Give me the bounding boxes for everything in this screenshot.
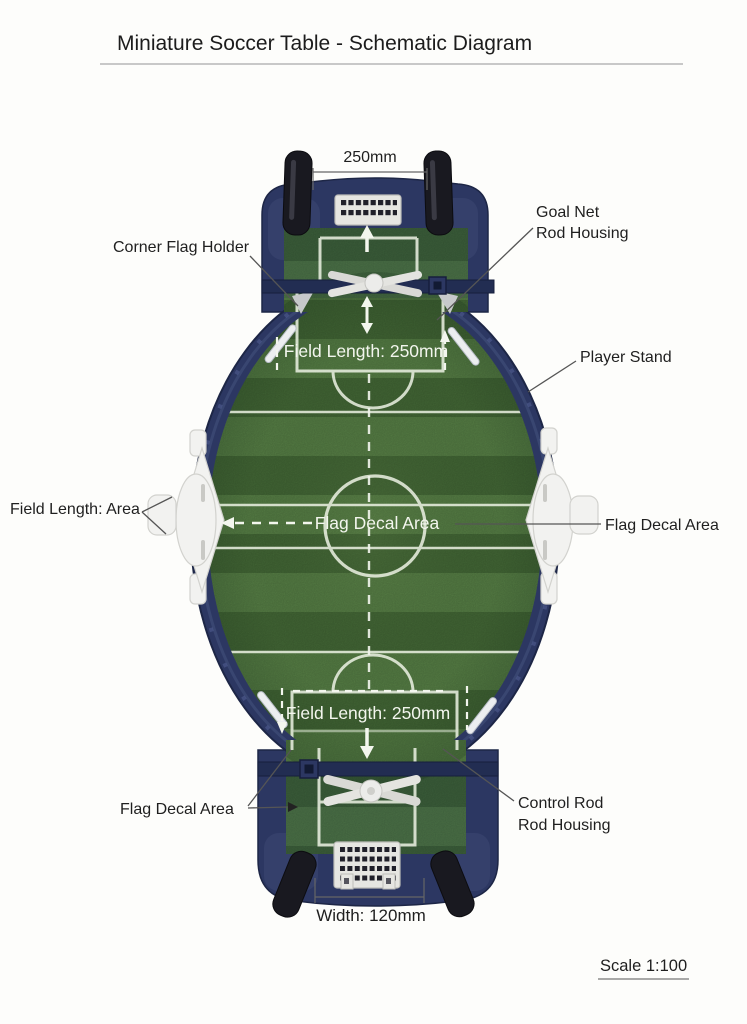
page-title: Miniature Soccer Table - Schematic Diagr…	[117, 32, 532, 55]
top-width-label: 250mm	[343, 149, 396, 166]
scale-note: Scale 1:100	[600, 957, 687, 975]
bottom-goal-clip-left-hole	[344, 878, 349, 884]
soccer-table-diagram: Field Length: 250mm Flag Decal Area Fiel…	[0, 0, 747, 1024]
label-goal-net-line2: Rod Housing	[536, 225, 629, 242]
bottom-socket-hole	[305, 765, 314, 774]
label-goal-net-line1: Goal Net	[536, 204, 600, 221]
field-length-bottom-label: Field Length: 250mm	[286, 703, 450, 723]
top-goal	[335, 195, 401, 225]
label-flag-decal-bottom-left: Flag Decal Area	[120, 801, 234, 818]
label-control-rod-line2: Rod Housing	[518, 817, 611, 834]
bottom-crossbar	[258, 762, 498, 776]
label-player-stand: Player Stand	[580, 349, 672, 366]
flag-decal-center-label: Flag Decal Area	[315, 513, 440, 533]
rod-handle-top-left	[283, 151, 313, 236]
field-length-top-label: Field Length: 250mm	[284, 341, 448, 361]
label-flag-decal-right: Flag Decal Area	[605, 517, 719, 534]
player-stand-right-grip	[570, 496, 598, 534]
bottom-width-label: Width: 120mm	[316, 906, 426, 925]
bottom-goal-clip-right-hole	[386, 878, 391, 884]
leader-player-stand	[528, 361, 576, 392]
label-field-length-area: Field Length: Area	[10, 501, 140, 518]
player-stand-left-grip	[148, 495, 176, 535]
bottom-goal	[334, 842, 400, 889]
label-corner-flag-holder: Corner Flag Holder	[113, 239, 250, 256]
rod-handle-top-right	[424, 151, 454, 236]
top-socket-hole	[434, 282, 442, 290]
top-goal-net-grid	[341, 200, 397, 218]
label-control-rod-line1: Control Rod	[518, 795, 603, 812]
schematic-page: Field Length: 250mm Flag Decal Area Fiel…	[0, 0, 747, 1024]
